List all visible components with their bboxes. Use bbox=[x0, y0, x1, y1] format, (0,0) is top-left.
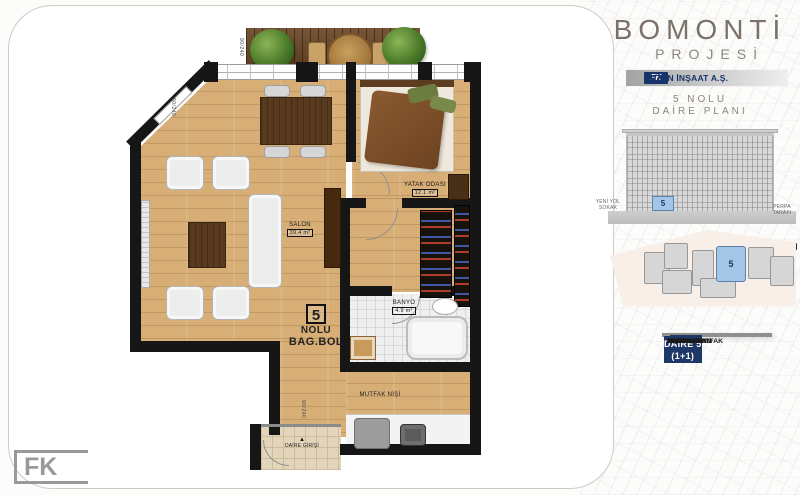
room-name: SALON bbox=[268, 222, 332, 228]
wall-segment bbox=[296, 62, 318, 82]
dining-chair bbox=[300, 146, 326, 158]
wall-bottom-left bbox=[130, 341, 280, 352]
bedroom-label: YATAK ODASI 12.1 m² bbox=[392, 182, 458, 197]
window-band bbox=[204, 64, 478, 80]
dimension-label: 90/240 bbox=[300, 400, 306, 418]
bed-headboard bbox=[360, 80, 454, 87]
armchair bbox=[212, 286, 250, 320]
sink-stove bbox=[400, 424, 426, 446]
bath-label: BANYO 4.9 m² bbox=[382, 300, 426, 315]
room-name: BANYO bbox=[382, 300, 426, 306]
wall-bath-bottom bbox=[340, 362, 472, 372]
company-name: KETEN İNŞAAT A.Ş. bbox=[644, 73, 728, 83]
dimension-label: 90/240 bbox=[238, 38, 244, 56]
dining-chair bbox=[264, 85, 290, 97]
armchair bbox=[166, 156, 204, 190]
dining-table bbox=[260, 97, 332, 145]
brand-bar: FK KETEN İNŞAAT A.Ş. bbox=[626, 70, 788, 86]
radiator bbox=[141, 200, 150, 288]
building-footprint bbox=[770, 256, 794, 286]
coffee-table bbox=[188, 222, 226, 268]
dimension-label: 90/240 bbox=[170, 98, 176, 116]
fridge bbox=[354, 418, 390, 449]
bathtub bbox=[406, 316, 468, 360]
facade-highlighted-unit: 5 bbox=[652, 196, 674, 211]
table-row: BRÜT ALAN81,0 m2 bbox=[664, 335, 670, 346]
wall-bath-top bbox=[340, 286, 392, 296]
kitchen-label: MUTFAK NİŞİ bbox=[344, 392, 416, 398]
unit-badge: 5 NOLU BAG.BOL bbox=[278, 304, 354, 348]
area-table: DAİRE 5 (1+1) SALON+MUTFAK39,4 m2 YATAK … bbox=[662, 333, 772, 337]
armchair bbox=[166, 286, 204, 320]
armchair bbox=[212, 156, 250, 190]
washbasin bbox=[432, 298, 458, 315]
street-label-right: PERPA TARAFI bbox=[764, 204, 800, 216]
room-area: 12.1 m² bbox=[412, 189, 439, 197]
wall-lower-left bbox=[269, 341, 280, 435]
unit-word: BAG.BOL bbox=[278, 336, 354, 348]
project-subtitle: PROJESİ bbox=[604, 46, 764, 62]
sofa bbox=[248, 194, 282, 288]
wall-bedroom-divider bbox=[346, 62, 356, 162]
unit-number: 5 bbox=[306, 304, 326, 324]
building-footprint bbox=[664, 243, 688, 269]
wall-entrance-left bbox=[250, 424, 261, 470]
unit-word: NOLU bbox=[278, 325, 354, 336]
facade-elevation bbox=[626, 133, 774, 212]
siteplan-highlighted-unit: 5 bbox=[716, 246, 746, 282]
room-area: 4.9 m² bbox=[392, 307, 415, 315]
street-label-left: YENİ YOL SOKAK bbox=[590, 199, 626, 211]
entrance-label: ▲ DAİRE GİRİŞİ bbox=[272, 437, 332, 449]
wall-segment bbox=[418, 62, 432, 82]
kitchen-floor bbox=[280, 341, 346, 437]
building-footprint bbox=[662, 270, 692, 294]
wall-right bbox=[470, 62, 481, 455]
project-title: BOMONTİ bbox=[604, 14, 796, 46]
wardrobe bbox=[420, 210, 452, 298]
room-area: 39.4 m² bbox=[287, 229, 314, 237]
wall-left bbox=[130, 140, 141, 352]
room-name: MUTFAK NİŞİ bbox=[344, 392, 416, 398]
plan-title-line1: 5 NOLU bbox=[620, 94, 780, 105]
salon-label: SALON 39.4 m² bbox=[268, 222, 332, 237]
footer-fk-logo: FK bbox=[14, 450, 88, 484]
dining-chair bbox=[300, 85, 326, 97]
brochure-page: SALON 39.4 m² YATAK ODASI 12.1 m² BANYO … bbox=[0, 0, 800, 495]
plan-title-line2: DAİRE PLANI bbox=[620, 106, 780, 117]
wardrobe bbox=[454, 205, 470, 307]
room-name: YATAK ODASI bbox=[392, 182, 458, 188]
dining-chair bbox=[264, 146, 290, 158]
entrance-partition bbox=[261, 424, 341, 427]
